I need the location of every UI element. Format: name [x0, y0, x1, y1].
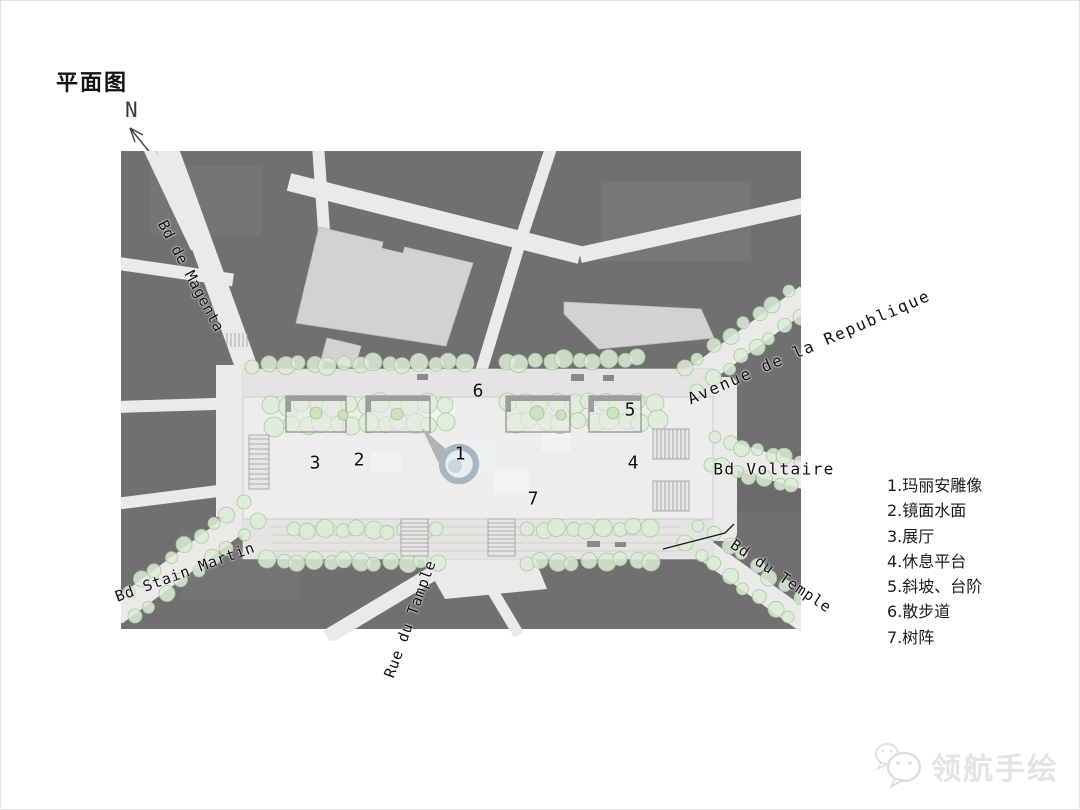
plaza-marker-3: 3: [310, 453, 321, 474]
plaza-marker-5: 5: [625, 400, 636, 421]
legend-item: 5.斜坡、台阶: [887, 574, 982, 599]
watermark: 领航手绘: [873, 737, 1059, 793]
plaza-marker-6: 6: [473, 381, 484, 402]
plaza-marker-4: 4: [628, 453, 639, 474]
legend-item: 1.玛丽安雕像: [887, 473, 982, 498]
wechat-icon: [873, 737, 925, 793]
legend-item: 3.展厅: [887, 524, 982, 549]
plaza-marker-1: 1: [455, 444, 466, 465]
legend-item: 7.树阵: [887, 625, 982, 650]
east-stairs: [653, 429, 689, 459]
north-label: N: [125, 98, 138, 122]
south-stairs: [401, 519, 428, 556]
south-stairs: [488, 519, 515, 556]
watermark-text: 领航手绘: [931, 744, 1059, 788]
west-crosswalk: [249, 435, 269, 489]
legend-item: 6.散步道: [887, 599, 982, 624]
legend: 1.玛丽安雕像 2.镜面水面 3.展厅 4.休息平台 5.斜坡、台阶 6.散步道…: [887, 473, 982, 650]
east-stairs: [653, 481, 689, 511]
plaza-marker-7: 7: [528, 489, 539, 510]
legend-item: 2.镜面水面: [887, 498, 982, 523]
legend-item: 4.休息平台: [887, 549, 982, 574]
page: 平面图 N: [0, 0, 1080, 810]
street-label-bd-voltaire: Bd Voltaire: [713, 460, 834, 479]
plaza-marker-2: 2: [354, 450, 365, 471]
